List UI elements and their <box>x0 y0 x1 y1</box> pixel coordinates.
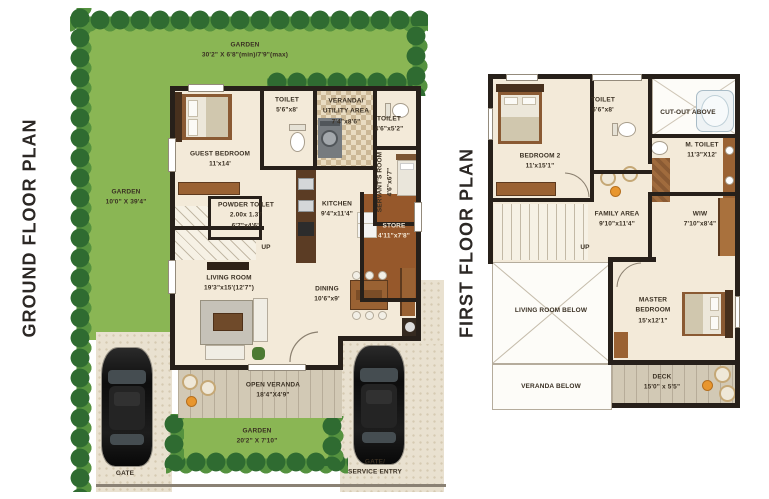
veranda-utility-label: VERANDA/ UTILITY AREA 7'4"x8'6" <box>323 96 369 127</box>
powder-toilet-label: POWDER TOILET 2.00x 1.37 6'7"x4'6" <box>218 200 274 231</box>
wall <box>360 298 421 302</box>
bedroom2-door-arc <box>564 172 590 198</box>
window <box>488 108 493 140</box>
window <box>506 74 538 81</box>
deck-label: DECK 15'0" x 5'5" <box>644 373 680 394</box>
first-floor-plan: BEDROOM 2 11'x15'1" TOILET 6'6"x8' CUT-O… <box>488 74 740 410</box>
wall <box>488 74 493 264</box>
veranda-table-icon <box>186 396 197 407</box>
garden-front-label: GARDEN 20'2" X 7'10" <box>237 427 278 448</box>
bench-icon <box>253 298 268 342</box>
garden-top-label: GARDEN 30'2" X 6'8"(min)/7'9"(max) <box>202 41 288 62</box>
cut-out-label: CUT-OUT ABOVE <box>660 108 716 118</box>
bedroom2-bed-icon <box>496 84 544 144</box>
family-table-icon <box>610 186 621 197</box>
window <box>414 202 422 232</box>
m-toilet-label: M. TOILET 11'3"X12' <box>685 141 718 162</box>
car-icon <box>354 346 404 464</box>
garden-left <box>84 18 172 340</box>
wall <box>373 146 421 150</box>
wiw-label: WIW 7'10"x8'4" <box>684 210 716 231</box>
ground-floor-title: GROUND FLOOR PLAN <box>20 119 41 338</box>
wall <box>590 170 652 174</box>
servant-bed-icon <box>396 154 418 198</box>
wall <box>338 336 421 341</box>
window <box>592 74 642 81</box>
wall <box>360 192 364 302</box>
tree-border-left <box>68 8 94 492</box>
wall <box>612 403 740 408</box>
gate-service-label: GATE/ SERVICE ENTRY <box>348 458 402 479</box>
wall <box>648 196 652 258</box>
master-bed-icon <box>680 290 733 338</box>
open-veranda-label: OPEN VERANDA 18'4"X4'9" <box>246 381 300 402</box>
sideboard-icon <box>178 182 240 195</box>
car-icon <box>102 348 152 466</box>
guest-bedroom-label: GUEST BEDROOM 11'x14' <box>190 150 250 171</box>
gate-label: GATE <box>116 469 134 479</box>
wall <box>492 198 592 202</box>
living-room-below-label: LIVING ROOM BELOW <box>515 306 587 316</box>
veranda-below-label: VERANDA BELOW <box>521 382 581 392</box>
window <box>188 84 224 92</box>
front-boundary-line <box>96 484 446 487</box>
deck-table-icon <box>702 380 713 391</box>
wiw-wardrobe-icon <box>718 198 735 256</box>
wall <box>735 74 740 408</box>
window <box>168 138 176 172</box>
wall <box>313 86 317 170</box>
sliding-door <box>248 364 306 371</box>
deck-chair-icon <box>714 366 731 383</box>
toilet1-icon <box>289 124 306 131</box>
master-door-arc <box>616 262 642 288</box>
veranda-chair-icon <box>182 374 198 390</box>
stairs-first <box>494 204 588 260</box>
deck-chair-icon <box>719 385 736 402</box>
guest-bed-icon <box>174 92 232 142</box>
master-bedroom-label: MASTER BEDROOM 15'x12'1" <box>636 295 671 326</box>
floor-plan-image: GROUND FLOOR PLAN <box>0 0 769 499</box>
loveseat-icon <box>205 345 245 360</box>
bedroom2-label: BEDROOM 2 11'x15'1" <box>520 152 561 173</box>
toilet-first-bowl-icon <box>618 122 636 137</box>
dining-table-icon <box>350 280 388 310</box>
ground-floor-plan: GARDEN 30'2" X 6'8"(min)/7'9"(max) GARDE… <box>68 6 446 494</box>
window <box>735 296 740 328</box>
garden-left-label: GARDEN 10'0" X 39'4" <box>106 188 147 209</box>
wall <box>648 192 736 196</box>
tree-col-front-right <box>320 416 344 466</box>
dining-label: DINING 10'6"x9' <box>314 285 339 306</box>
wall <box>648 134 736 138</box>
veranda-chair-icon <box>200 380 216 396</box>
up-label-first: UP <box>580 243 589 253</box>
servants-room-label: SERVANT'S ROOM 4'6"x6'7" <box>376 152 397 212</box>
wall <box>590 74 594 202</box>
master-wardrobe-icon <box>614 332 628 358</box>
sofa-icon <box>200 300 253 345</box>
toilet2-label: TOILET 4'6"x5'2" <box>375 115 404 136</box>
cabinet-icon <box>400 268 415 316</box>
side-porch <box>421 280 444 344</box>
up-label-ground: UP <box>261 243 270 253</box>
tree-border-top <box>70 8 428 32</box>
wall <box>648 74 652 164</box>
first-floor-title: FIRST FLOOR PLAN <box>457 148 478 338</box>
kitchen-counter-icon <box>296 169 316 263</box>
toilet1-label: TOILET 5'6"x8' <box>275 96 299 117</box>
family-area-label: FAMILY AREA 9'10"x11'4" <box>595 210 640 231</box>
wall <box>260 166 377 170</box>
kitchen-label: KITCHEN 9'4"x11'4" <box>321 200 353 221</box>
living-room-label: LIVING ROOM 19'3"x15'(12'7") <box>204 274 254 295</box>
family-chair-icon <box>622 166 638 182</box>
tv-unit-icon <box>207 262 249 270</box>
store-label: STORE 4'11"x7'8" <box>378 222 410 243</box>
toilet-first-label: TOILET 6'6"x8' <box>591 96 615 117</box>
tree-col-front-left <box>162 414 184 468</box>
wall <box>260 86 264 170</box>
bedroom2-dresser-icon <box>496 182 556 196</box>
window <box>168 260 176 294</box>
m-toilet-wc-icon <box>651 141 668 155</box>
wall <box>608 360 740 365</box>
main-door-arc <box>288 330 318 362</box>
wall <box>608 257 613 365</box>
plant-icon <box>252 347 265 360</box>
toilet1-bowl-icon <box>290 132 305 152</box>
